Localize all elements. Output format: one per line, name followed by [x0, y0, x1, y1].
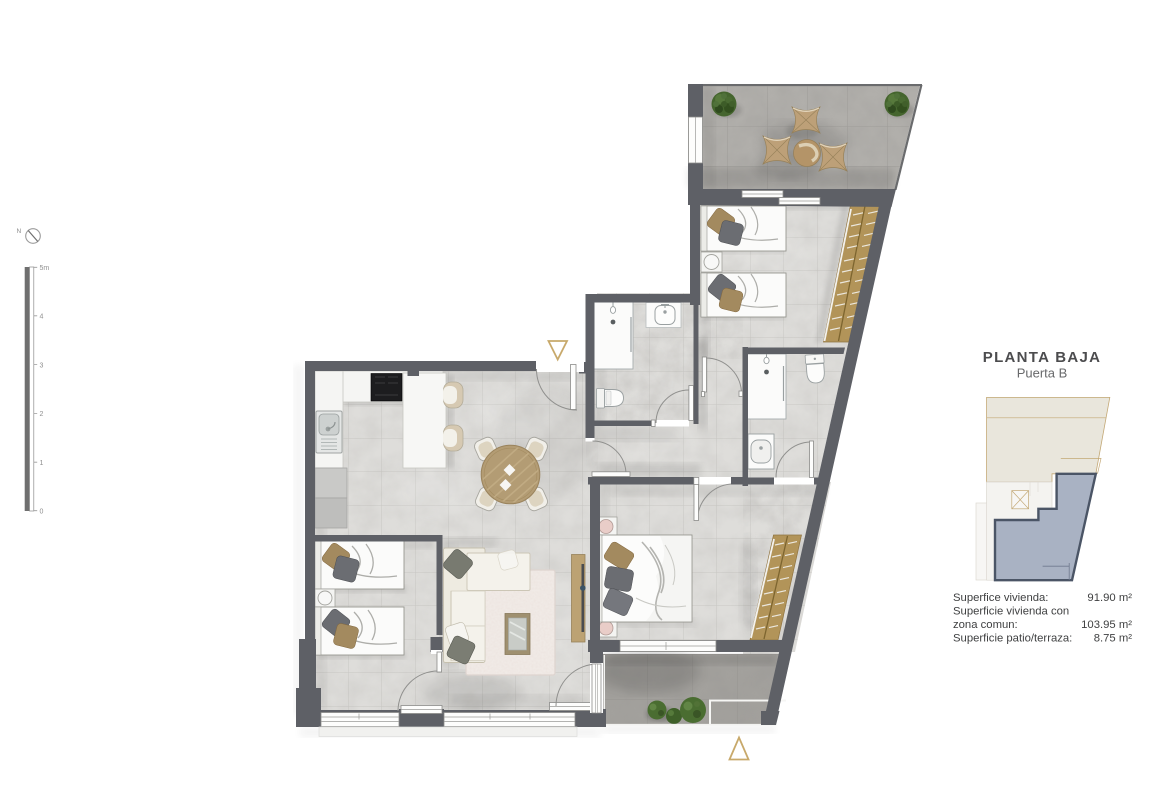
svg-text:91.90 m²: 91.90 m²: [1087, 592, 1132, 604]
svg-text:4: 4: [40, 314, 44, 321]
svg-text:2: 2: [40, 411, 44, 418]
svg-text:Superficie vivienda con: Superficie vivienda con: [953, 606, 1069, 618]
svg-text:Puerta B: Puerta B: [1017, 366, 1068, 381]
svg-text:PLANTA BAJA: PLANTA BAJA: [983, 349, 1101, 366]
svg-text:zona comun:: zona comun:: [953, 619, 1018, 631]
svg-text:1: 1: [40, 460, 44, 467]
svg-text:N: N: [17, 228, 22, 235]
svg-text:Superficie patio/terraza:: Superficie patio/terraza:: [953, 633, 1072, 645]
svg-text:5m: 5m: [40, 265, 50, 272]
svg-text:8.75 m²: 8.75 m²: [1094, 633, 1133, 645]
svg-text:Superfice vivienda:: Superfice vivienda:: [953, 592, 1048, 604]
svg-text:103.95 m²: 103.95 m²: [1081, 619, 1132, 631]
svg-text:3: 3: [40, 363, 44, 370]
svg-text:0: 0: [40, 509, 44, 516]
